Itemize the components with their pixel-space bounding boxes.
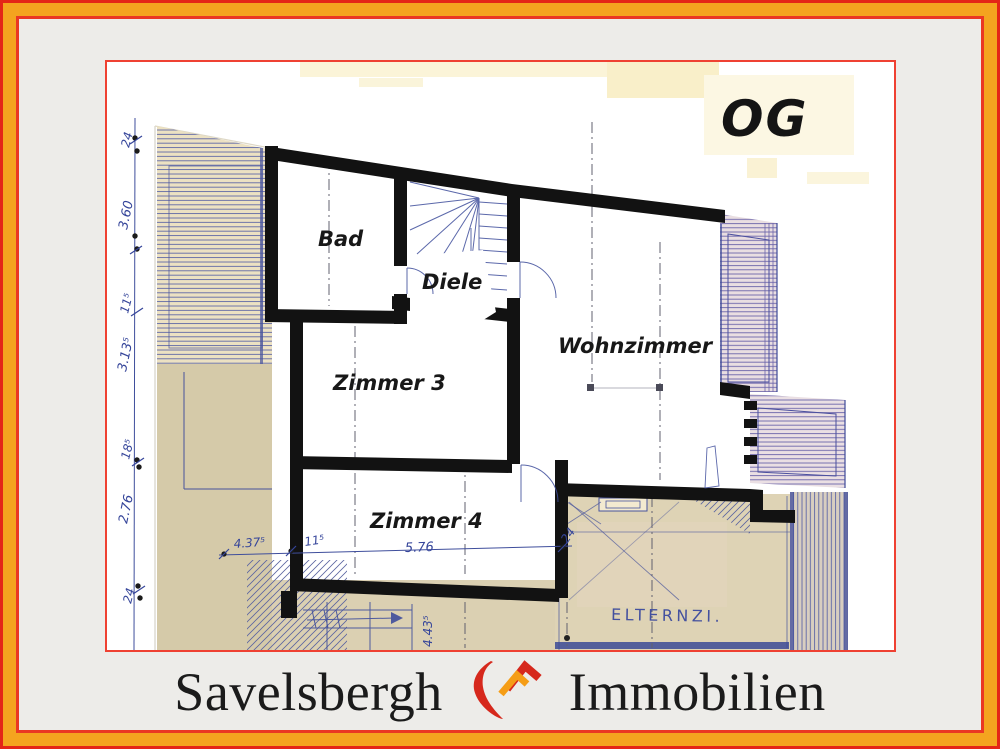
company-logo-icon [469, 659, 543, 723]
brand-word-right: Immobilien [569, 665, 826, 719]
floorplan-panel: 24 3.60 11⁵ 3.13⁵ 18⁵ 2.76 24 [105, 60, 896, 652]
post-marker [656, 384, 663, 391]
roof-strip-right [790, 492, 848, 650]
room-label-diele: Diele [422, 270, 482, 294]
room-label-wohnzimmer: Wohnzimmer [558, 334, 714, 358]
room-label-zimmer3: Zimmer 3 [332, 371, 446, 395]
room-label-elternzimmer: ELTERNZI. [611, 605, 723, 626]
floor-label: OG [721, 90, 809, 148]
room-label-zimmer4: Zimmer 4 [369, 509, 483, 533]
post-marker [587, 384, 594, 391]
logo-swoosh [474, 661, 503, 719]
framed-floorplan-image: 24 3.60 11⁵ 3.13⁵ 18⁵ 2.76 24 [0, 0, 1000, 749]
dim-label-stair-width: 4.43⁵ [421, 615, 435, 647]
survey-dot [564, 635, 570, 641]
terrace-upper [720, 214, 777, 392]
dim-label: 4.37⁵ [233, 535, 266, 551]
brand-word-left: Savelsbergh [174, 665, 442, 719]
roof-hatch-left-strip [157, 126, 272, 364]
floorplan-drawing: 24 3.60 11⁵ 3.13⁵ 18⁵ 2.76 24 [107, 62, 894, 650]
dim-label: 5.76 [405, 540, 434, 556]
room-label-bad: Bad [318, 227, 364, 251]
dim-label: 11⁵ [303, 532, 325, 549]
terrace-lower [750, 394, 845, 488]
brand-band: Savelsbergh Immobilien [19, 652, 981, 731]
